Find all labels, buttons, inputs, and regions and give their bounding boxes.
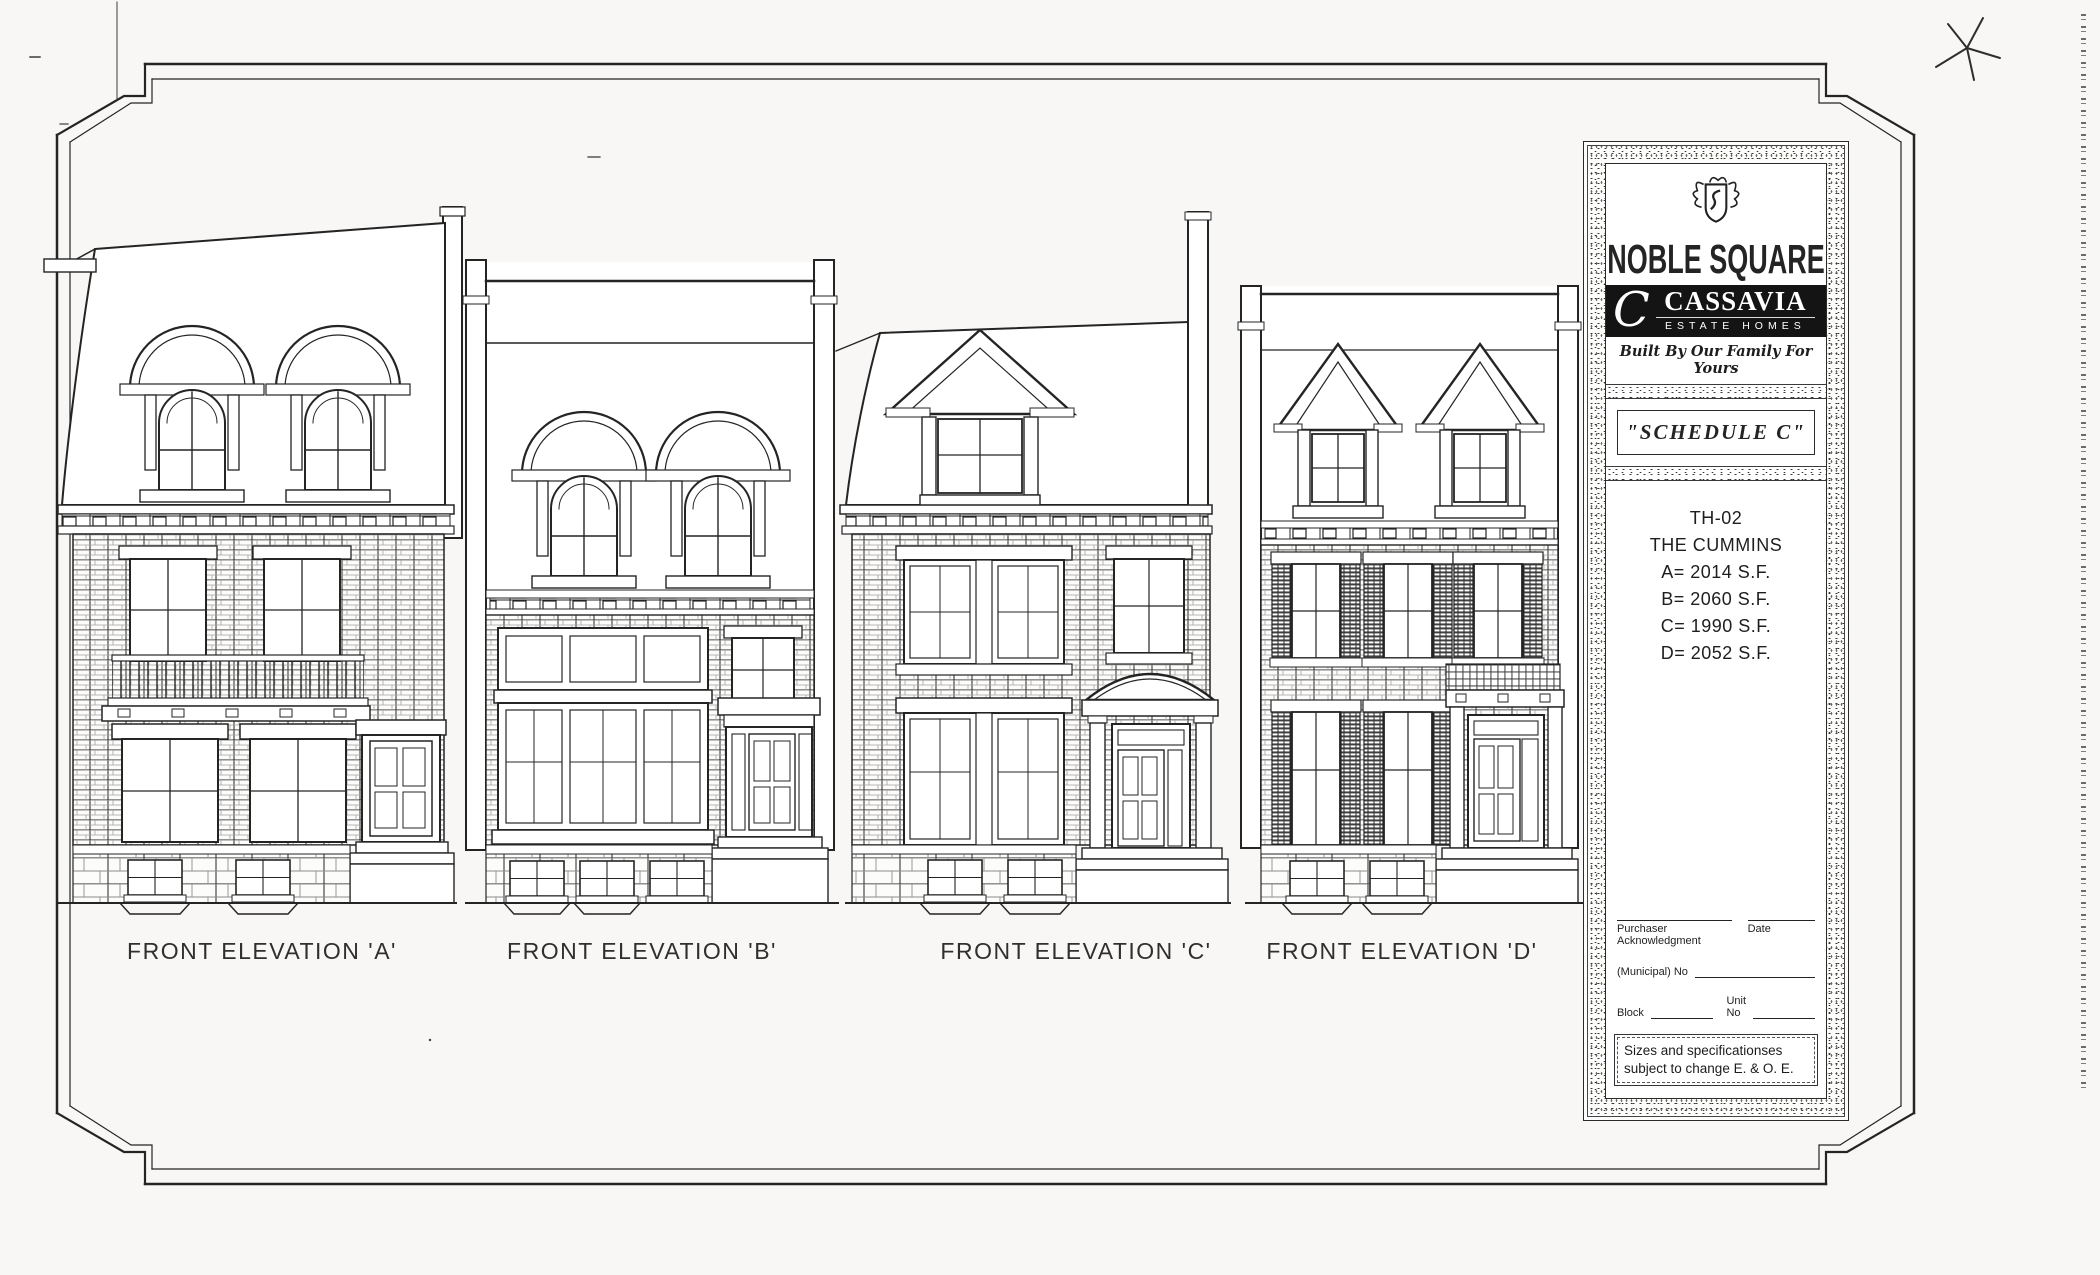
stipple-divider xyxy=(1606,466,1826,481)
basement-window xyxy=(646,861,708,903)
pilaster xyxy=(466,260,486,850)
disclaimer-note-box: Sizes and specificationses subject to ch… xyxy=(1614,1034,1818,1086)
builder-tagline: Built By Our Family For Yours xyxy=(1606,337,1826,384)
second-floor-window xyxy=(724,626,802,702)
basement-window xyxy=(232,860,294,902)
entry-door xyxy=(350,720,454,903)
arched-portico-entry xyxy=(1076,674,1228,903)
stone-base xyxy=(852,845,1076,903)
model-code: TH-02 xyxy=(1606,505,1826,532)
elevation-c-label: FRONT ELEVATION 'C' xyxy=(940,938,1211,965)
date-label: Date xyxy=(1748,923,1815,935)
portico-column xyxy=(1090,723,1105,848)
schedule-title: "SCHEDULE C" xyxy=(1617,410,1815,455)
stipple-divider xyxy=(1606,384,1826,399)
builder-initial: C xyxy=(1613,292,1650,328)
second-floor-shuttered-windows xyxy=(1270,552,1544,667)
municipal-line[interactable] xyxy=(1695,964,1815,978)
elevation-a-label: FRONT ELEVATION 'A' xyxy=(127,938,397,965)
date-line[interactable] xyxy=(1748,907,1815,921)
ground-floor-windows xyxy=(896,698,1072,845)
portico-entry xyxy=(1436,690,1578,903)
party-wall-post xyxy=(1188,212,1208,510)
builder-band: C CASSAVIA ESTATE HOMES xyxy=(1606,285,1826,337)
elevation-b-label: FRONT ELEVATION 'B' xyxy=(507,938,777,965)
entry-door xyxy=(712,698,828,903)
pilaster xyxy=(814,260,834,850)
model-area-a: A= 2014 S.F. xyxy=(1606,559,1826,586)
model-area-d: D= 2052 S.F. xyxy=(1606,640,1826,667)
portico-column xyxy=(1196,723,1211,848)
basement-window xyxy=(576,861,638,903)
title-block: NOBLE SQUARE C CASSAVIA ESTATE HOMES Bui… xyxy=(1583,141,1849,1121)
elevation-c-drawing xyxy=(836,212,1230,914)
dentil-cornice xyxy=(840,505,1212,534)
stone-base xyxy=(1261,845,1436,903)
elevation-b-drawing xyxy=(463,260,838,914)
basement-window xyxy=(1004,860,1066,902)
stacked-bay-windows xyxy=(492,628,714,844)
elevation-d-drawing xyxy=(1238,286,1582,914)
block-label: Block xyxy=(1617,1007,1644,1019)
portico-column xyxy=(1548,707,1562,848)
unit-label: Unit No xyxy=(1726,995,1746,1019)
stone-base xyxy=(486,845,712,903)
ground-floor-entablature xyxy=(102,706,370,721)
trellis-panel xyxy=(1446,664,1560,690)
balcony-railing xyxy=(108,655,368,706)
star-mark-icon xyxy=(1936,18,2000,80)
model-area-c: C= 1990 S.F. xyxy=(1606,613,1826,640)
model-specs: TH-02 THE CUMMINS A= 2014 S.F. B= 2060 S… xyxy=(1606,481,1826,667)
dentil-cornice xyxy=(58,505,454,534)
basement-window xyxy=(506,861,568,903)
pilaster xyxy=(1241,286,1261,848)
stone-base xyxy=(73,845,350,903)
drawing-sheet: FRONT ELEVATION 'A' FRONT ELEVATION 'B' … xyxy=(0,0,2100,1275)
model-name: THE CUMMINS xyxy=(1606,532,1826,559)
basement-window xyxy=(124,860,186,902)
crest-icon xyxy=(1685,172,1747,230)
community-name: NOBLE SQUARE xyxy=(1607,237,1825,284)
block-line[interactable] xyxy=(1651,1005,1713,1019)
scan-edge-text-artifact xyxy=(2081,14,2086,1089)
basement-window xyxy=(1366,861,1428,903)
disclaimer-note: Sizes and specificationses subject to ch… xyxy=(1617,1037,1815,1083)
elevation-a-drawing xyxy=(44,207,465,914)
basement-window xyxy=(1286,861,1348,903)
purchaser-label: Purchaser Acknowledgment xyxy=(1617,923,1732,947)
municipal-label: (Municipal) No xyxy=(1617,966,1688,978)
purchaser-signature-line[interactable] xyxy=(1617,907,1732,921)
elevation-d-label: FRONT ELEVATION 'D' xyxy=(1266,938,1537,965)
dentil-cornice xyxy=(1261,521,1558,545)
builder-name: CASSAVIA xyxy=(1652,288,1819,315)
unit-line[interactable] xyxy=(1753,1005,1815,1019)
second-floor-windows xyxy=(896,546,1192,675)
builder-logo: NOBLE SQUARE C CASSAVIA ESTATE HOMES Bui… xyxy=(1606,164,1826,384)
dentil-cornice xyxy=(486,590,814,615)
basement-window xyxy=(924,860,986,902)
portico-column xyxy=(1450,707,1464,848)
builder-subtitle: ESTATE HOMES xyxy=(1656,317,1815,332)
purchaser-form: Purchaser Acknowledgment Date (Municipal… xyxy=(1606,907,1826,1019)
model-area-b: B= 2060 S.F. xyxy=(1606,586,1826,613)
